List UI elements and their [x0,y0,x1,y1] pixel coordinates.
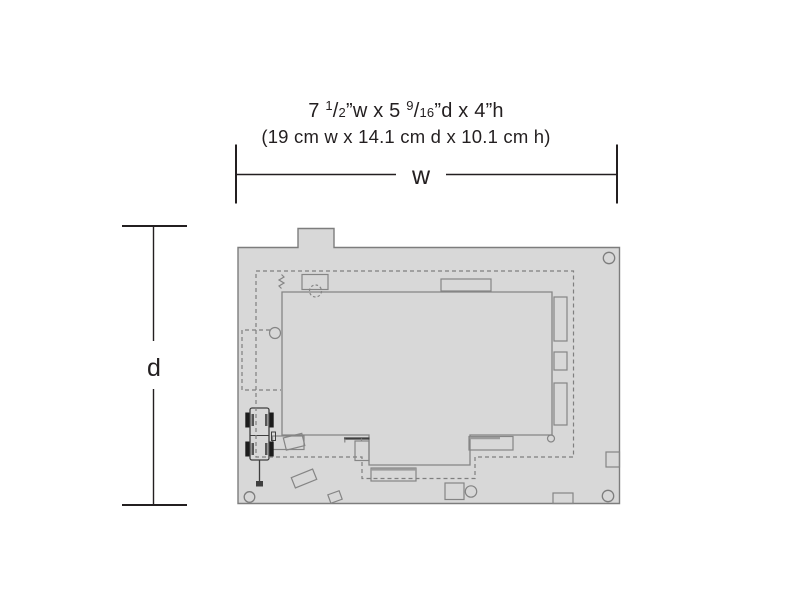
truck-inner-wheel-4 [265,443,268,455]
width-dimension: w [236,145,617,204]
truck-inner-wheel-2 [252,443,255,455]
width-label: w [411,162,431,190]
depth-label: d [147,354,161,382]
truck-inner-wheel-3 [265,414,268,426]
plan-drawing: w d [0,0,800,600]
truck-inner-wheel-1 [252,414,255,426]
depth-dimension: d [122,226,187,505]
footprint-diagram: 7 1/2”w x 5 9/16”d x 4”h (19 cm w x 14.1… [0,0,800,600]
truck-tow-block [256,481,263,487]
